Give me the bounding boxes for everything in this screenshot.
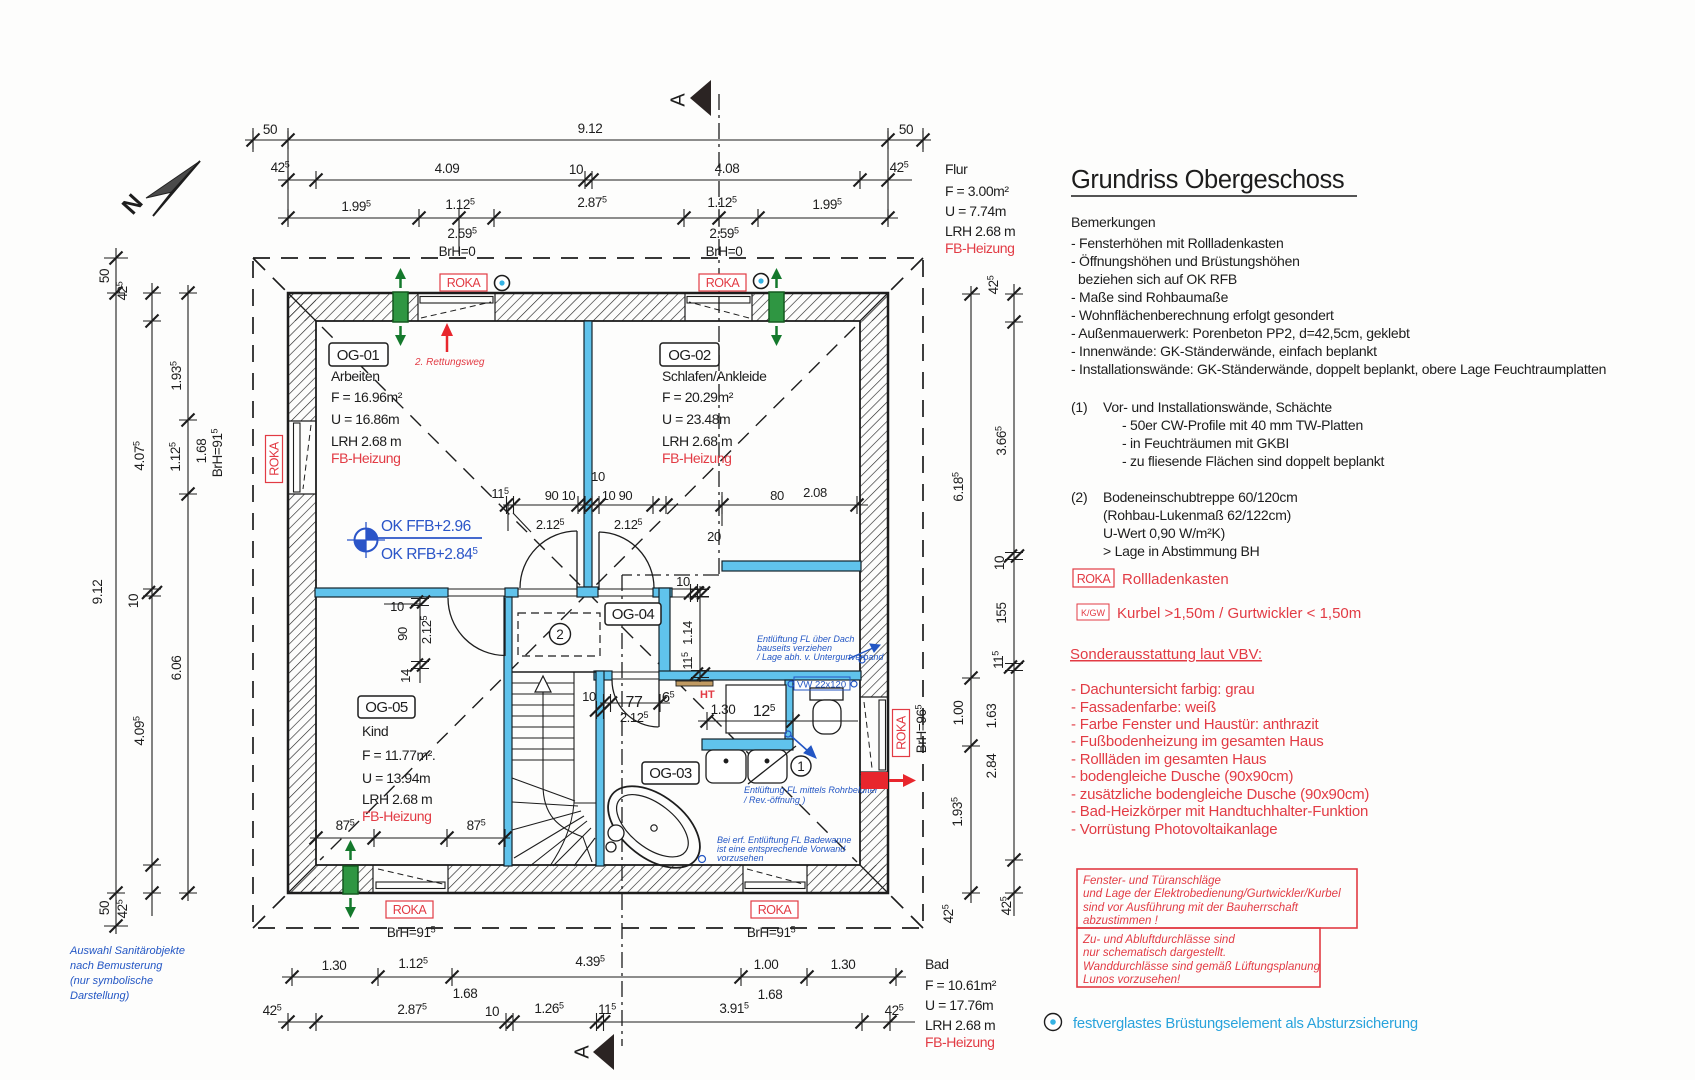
svg-text:ROKA: ROKA: [447, 276, 482, 290]
svg-text:BrH=0: BrH=0: [439, 244, 476, 259]
svg-text:OK RFB+2.845: OK RFB+2.845: [381, 546, 478, 563]
svg-text:10 90: 10 90: [602, 488, 633, 503]
svg-text:ROKA: ROKA: [268, 441, 282, 476]
svg-text:90 10: 90 10: [545, 488, 576, 503]
svg-text:- in Feuchträumen mit GKBI: - in Feuchträumen mit GKBI: [1122, 435, 1289, 451]
svg-text:U = 13.94m: U = 13.94m: [362, 770, 430, 786]
svg-text:Wanddurchlässe sind gemäß Lüft: Wanddurchlässe sind gemäß Lüftungsplanun…: [1083, 961, 1321, 973]
svg-text:nach Bemusterung: nach Bemusterung: [70, 960, 163, 972]
svg-text:1.00: 1.00: [951, 701, 966, 726]
svg-text:10: 10: [676, 574, 690, 589]
svg-text:- Fassadenfarbe: weiß: - Fassadenfarbe: weiß: [1071, 699, 1216, 716]
svg-text:VW 22x120: VW 22x120: [797, 680, 846, 691]
svg-text:LRH 2.68 m: LRH 2.68 m: [925, 1017, 995, 1033]
svg-text:4.08: 4.08: [715, 161, 740, 176]
svg-text:- Innenwände: GK-Ständerwände,: - Innenwände: GK-Ständerwände, einfach b…: [1071, 343, 1377, 359]
svg-text:FB-Heizung: FB-Heizung: [925, 1034, 994, 1050]
svg-text:LRH 2.68 m: LRH 2.68 m: [662, 433, 732, 449]
svg-text:1.30: 1.30: [711, 702, 736, 717]
svg-text:Bodeneinschubtreppe 60/120cm: Bodeneinschubtreppe 60/120cm: [1103, 489, 1298, 505]
svg-text:1.68: 1.68: [758, 987, 783, 1002]
svg-text:- Fußbodenheizung im gesamten: - Fußbodenheizung im gesamten Haus: [1071, 733, 1324, 750]
svg-text:Schlafen/Ankleide: Schlafen/Ankleide: [662, 368, 767, 384]
svg-text:Bemerkungen: Bemerkungen: [1071, 214, 1155, 230]
svg-text:U = 17.76m: U = 17.76m: [925, 997, 993, 1013]
svg-text:beziehen sich auf OK RFB: beziehen sich auf OK RFB: [1078, 271, 1237, 287]
svg-text:festverglastes Brüstungselemen: festverglastes Brüstungselement als Abst…: [1073, 1016, 1418, 1032]
svg-text:10: 10: [569, 162, 583, 177]
svg-text:Bad: Bad: [925, 956, 949, 972]
svg-text:20: 20: [707, 529, 721, 544]
svg-text:ROKA: ROKA: [393, 903, 428, 917]
svg-text:ROKA: ROKA: [706, 276, 741, 290]
svg-text:und Lage der Elektrobedienung/: und Lage der Elektrobedienung/Gurtwickle…: [1083, 888, 1341, 900]
svg-text:BrH=915: BrH=915: [387, 925, 436, 941]
svg-text:9.12: 9.12: [90, 580, 105, 605]
svg-text:1: 1: [797, 759, 805, 774]
svg-text:155: 155: [994, 602, 1009, 623]
svg-text:F = 3.00m²: F = 3.00m²: [945, 183, 1009, 199]
svg-text:50: 50: [899, 122, 913, 137]
svg-text:U-Wert 0,90 W/m²K): U-Wert 0,90 W/m²K): [1103, 525, 1225, 541]
svg-text:1.14: 1.14: [680, 621, 695, 645]
svg-text:F = 20.29m²: F = 20.29m²: [662, 389, 734, 405]
svg-text:(2): (2): [1071, 489, 1087, 505]
svg-text:10: 10: [126, 594, 141, 608]
svg-text:1.68: 1.68: [453, 986, 478, 1001]
svg-text:50: 50: [263, 122, 277, 137]
svg-text:- Installationswände: GK-Ständ: - Installationswände: GK-Ständerwände, d…: [1071, 361, 1606, 377]
svg-text:- bodengleiche Dusche (90x90cm: - bodengleiche Dusche (90x90cm): [1071, 768, 1293, 785]
svg-text:abzustimmen !: abzustimmen !: [1083, 915, 1159, 927]
svg-text:BrH=915: BrH=915: [747, 925, 796, 941]
svg-text:80: 80: [770, 488, 784, 503]
svg-text:Fenster- und Türanschläge: Fenster- und Türanschläge: [1083, 875, 1221, 887]
svg-text:- Maße sind Rohbaumaße: - Maße sind Rohbaumaße: [1071, 289, 1229, 305]
svg-text:50: 50: [97, 269, 112, 283]
svg-text:- zu fliesende Flächen sind do: - zu fliesende Flächen sind doppelt bepl…: [1122, 453, 1385, 469]
svg-text:F = 10.61m²: F = 10.61m²: [925, 977, 997, 993]
svg-text:1.68: 1.68: [194, 439, 209, 464]
svg-text:- Öffnungshöhen und Brüstungsh: - Öffnungshöhen und Brüstungshöhen: [1071, 252, 1300, 269]
svg-text:OK FFB+2.96: OK FFB+2.96: [381, 518, 471, 535]
svg-text:BrH=965: BrH=965: [914, 704, 930, 753]
svg-text:Darstellung): Darstellung): [70, 990, 130, 1002]
svg-text:LRH 2.68 m: LRH 2.68 m: [945, 223, 1015, 239]
svg-text:- Wohnflächenberechnung erfolg: - Wohnflächenberechnung erfolgt gesonder…: [1071, 307, 1334, 323]
svg-text:BrH=915: BrH=915: [210, 428, 226, 477]
svg-text:- zusätzliche bodengleiche Dus: - zusätzliche bodengleiche Dusche (90x90…: [1071, 786, 1369, 803]
svg-text:U = 23.48m: U = 23.48m: [662, 411, 730, 427]
svg-text:- 50er CW-Profile mit 40 mm TW: - 50er CW-Profile mit 40 mm TW-Platten: [1122, 417, 1363, 433]
svg-text:K/GW: K/GW: [1081, 608, 1106, 618]
svg-text:- Bad-Heizkörper mit Handtuchh: - Bad-Heizkörper mit Handtuchhalter-Funk…: [1071, 803, 1368, 820]
svg-text:nur schematisch dargestellt.: nur schematisch dargestellt.: [1083, 947, 1226, 959]
svg-text:Arbeiten: Arbeiten: [331, 368, 380, 384]
svg-text:Lunos vorzusehen!: Lunos vorzusehen!: [1083, 974, 1181, 986]
svg-text:ROKA: ROKA: [895, 715, 909, 750]
svg-text:OG-02: OG-02: [668, 347, 711, 364]
svg-text:4.09: 4.09: [435, 161, 460, 176]
svg-text:1.30: 1.30: [831, 957, 856, 972]
svg-text:Entlüftung FL mittels Rohrbelü: Entlüftung FL mittels Rohrbelüfter: [744, 785, 879, 795]
svg-text:(nur symbolische: (nur symbolische: [70, 975, 153, 987]
svg-text:FB-Heizung: FB-Heizung: [362, 808, 431, 824]
svg-text:10: 10: [992, 556, 1007, 570]
svg-text:- Dachuntersicht farbig: grau: - Dachuntersicht farbig: grau: [1071, 681, 1254, 698]
svg-text:Kurbel >1,50m / Gurtwickler <: Kurbel >1,50m / Gurtwickler < 1,50m: [1117, 605, 1361, 622]
svg-text:10: 10: [485, 1004, 499, 1019]
svg-text:OG-04: OG-04: [612, 606, 655, 623]
svg-text:10: 10: [591, 469, 605, 484]
svg-text:> Lage in Abstimmung BH: > Lage in Abstimmung BH: [1103, 543, 1260, 559]
svg-text:- Farbe Fenster und Haustür: a: - Farbe Fenster und Haustür: anthrazit: [1071, 716, 1320, 733]
svg-text:1.00: 1.00: [754, 957, 779, 972]
svg-text:(1): (1): [1071, 399, 1087, 415]
svg-text:F = 16.96m²: F = 16.96m²: [331, 389, 403, 405]
svg-text:A: A: [667, 93, 689, 107]
svg-text:2.08: 2.08: [803, 485, 827, 500]
svg-text:OG-01: OG-01: [337, 347, 380, 364]
svg-text:sind vor Ausführung mit der Ba: sind vor Ausführung mit der Bauherrschaf…: [1083, 902, 1299, 914]
svg-text:LRH 2.68 m: LRH 2.68 m: [362, 791, 432, 807]
svg-text:Auswahl Sanitärobjekte: Auswahl Sanitärobjekte: [69, 945, 185, 957]
svg-text:FB-Heizung: FB-Heizung: [945, 240, 1014, 256]
svg-text:Kind: Kind: [362, 723, 388, 739]
svg-text:FB-Heizung: FB-Heizung: [331, 450, 400, 466]
svg-text:OG-05: OG-05: [365, 699, 408, 716]
svg-text:LRH 2.68 m: LRH 2.68 m: [331, 433, 401, 449]
svg-text:2. Rettungsweg: 2. Rettungsweg: [414, 357, 485, 368]
svg-text:6.06: 6.06: [169, 656, 184, 681]
svg-text:Zu- und Abluftdurchlässe sind: Zu- und Abluftdurchlässe sind: [1082, 934, 1235, 946]
svg-text:U = 7.74m: U = 7.74m: [945, 203, 1006, 219]
svg-text:U = 16.86m: U = 16.86m: [331, 411, 399, 427]
svg-text:HT: HT: [700, 689, 715, 701]
svg-text:OG-03: OG-03: [649, 765, 692, 782]
svg-text:1.63: 1.63: [984, 704, 999, 729]
svg-text:FB-Heizung: FB-Heizung: [662, 450, 731, 466]
svg-text:ROKA: ROKA: [758, 903, 793, 917]
svg-text:14: 14: [398, 669, 413, 683]
svg-text:F = 11.77m².: F = 11.77m².: [362, 747, 435, 763]
svg-text:Flur: Flur: [945, 161, 968, 177]
svg-text:10: 10: [582, 689, 596, 704]
svg-text:/ Rev.-öffnung ): / Rev.-öffnung ): [743, 795, 805, 805]
svg-text:- Fensterhöhen mit Rollladenka: - Fensterhöhen mit Rollladenkasten: [1071, 235, 1284, 251]
svg-text:50: 50: [97, 901, 112, 915]
svg-text:2.84: 2.84: [984, 753, 999, 779]
svg-text:BrH=0: BrH=0: [706, 244, 743, 259]
svg-text:Rollladenkasten: Rollladenkasten: [1122, 571, 1229, 588]
svg-text:(Rohbau-Lukenmaß 62/122cm): (Rohbau-Lukenmaß 62/122cm): [1103, 507, 1291, 523]
svg-text:77: 77: [626, 694, 643, 711]
svg-text:9.12: 9.12: [578, 121, 603, 136]
svg-text:vorzusehen: vorzusehen: [717, 853, 764, 863]
svg-text:10: 10: [390, 599, 404, 614]
svg-text:Vor- und Installationswände, S: Vor- und Installationswände, Schächte: [1103, 399, 1332, 415]
svg-text:Sonderausstattung laut VBV:: Sonderausstattung laut VBV:: [1070, 646, 1262, 663]
svg-text:- Vorrüstung Photovoltaikanlag: - Vorrüstung Photovoltaikanlage: [1071, 821, 1277, 838]
svg-text:ROKA: ROKA: [1077, 572, 1112, 586]
svg-text:- Rollläden im gesamten Haus: - Rollläden im gesamten Haus: [1071, 751, 1266, 768]
svg-text:Grundriss Obergeschoss: Grundriss Obergeschoss: [1071, 166, 1344, 194]
svg-text:2: 2: [556, 627, 564, 642]
svg-text:1.30: 1.30: [322, 958, 347, 973]
svg-text:90: 90: [395, 627, 410, 641]
svg-text:A: A: [571, 1045, 593, 1059]
svg-text:- Außenmauerwerk: Porenbeton P: - Außenmauerwerk: Porenbeton PP2, d=42,5…: [1071, 325, 1410, 341]
